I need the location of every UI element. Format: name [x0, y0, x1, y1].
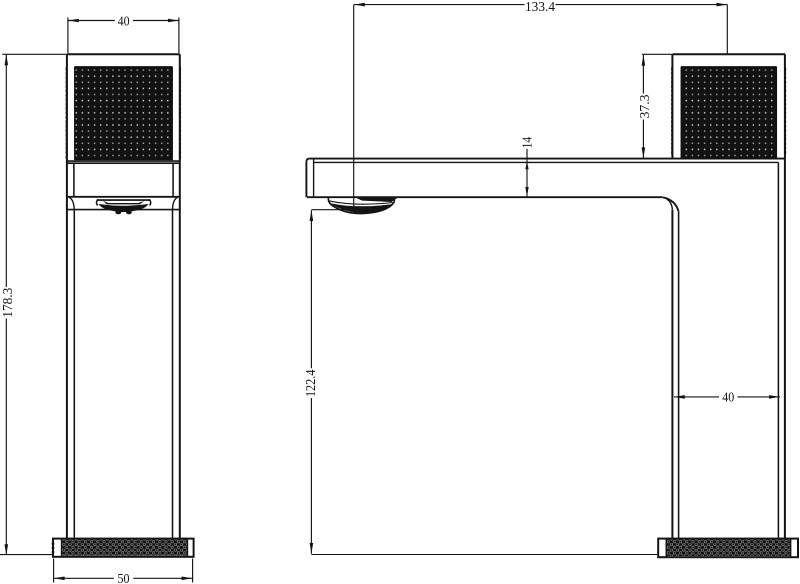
svg-text:40: 40	[722, 390, 734, 405]
svg-text:133.4: 133.4	[525, 0, 555, 14]
svg-text:122.4: 122.4	[303, 369, 318, 397]
svg-text:14: 14	[519, 137, 534, 149]
svg-text:178.3: 178.3	[0, 287, 15, 317]
svg-text:40: 40	[118, 14, 130, 29]
svg-text:37.3: 37.3	[637, 94, 652, 118]
svg-text:50: 50	[118, 571, 130, 584]
